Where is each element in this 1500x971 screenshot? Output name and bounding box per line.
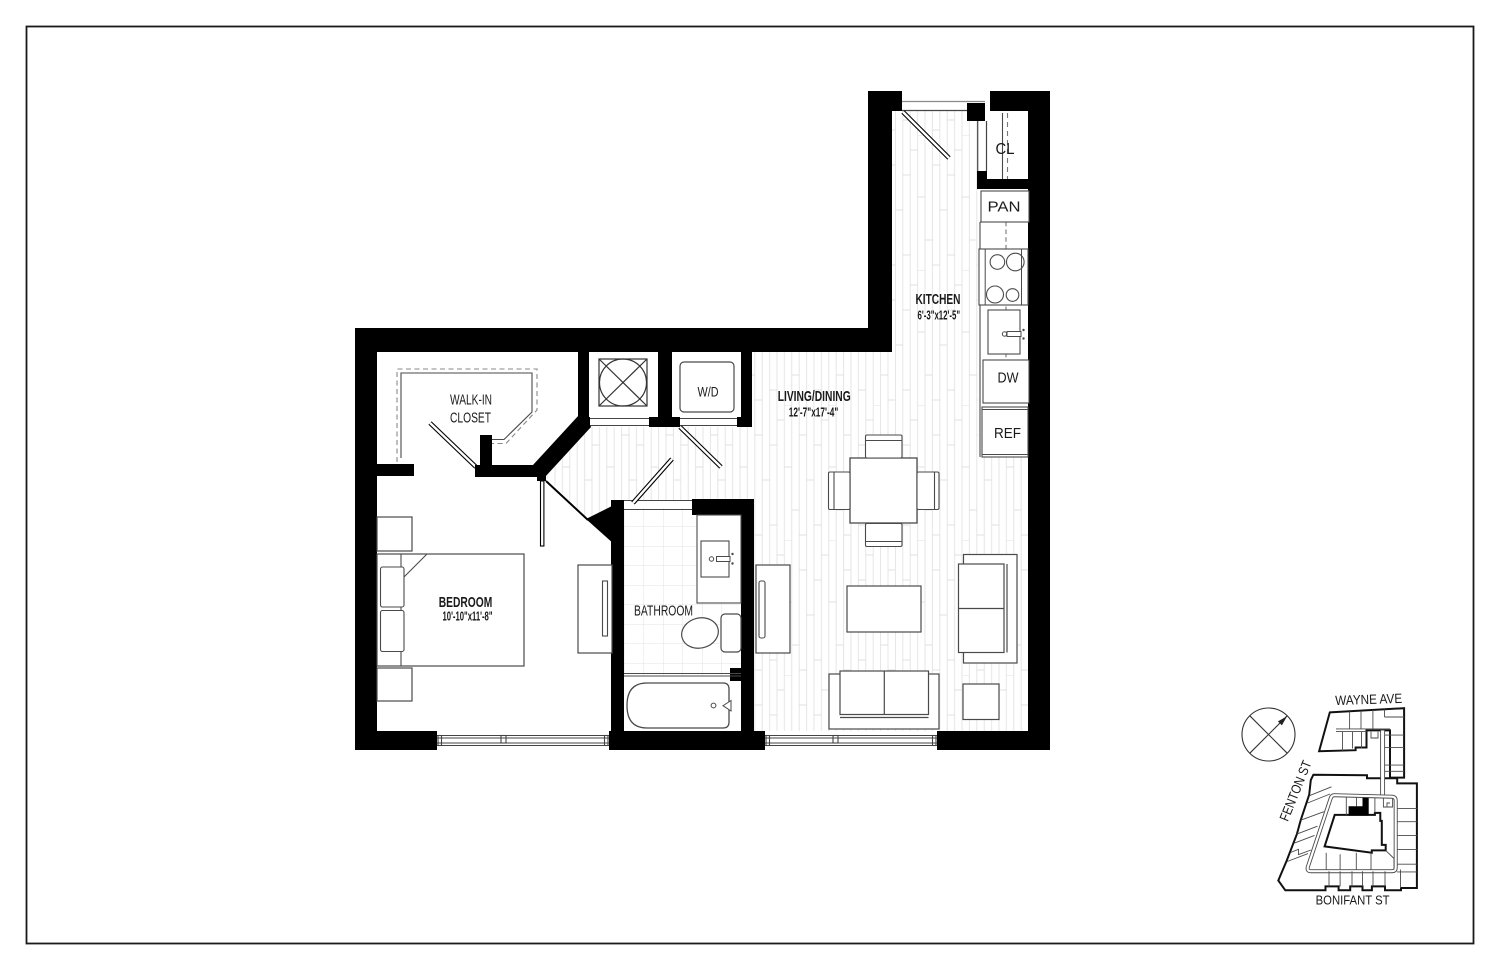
svg-text:KITCHEN: KITCHEN — [916, 292, 961, 308]
svg-text:WALK-IN: WALK-IN — [450, 393, 492, 409]
svg-text:6'-3"x12'-5": 6'-3"x12'-5" — [918, 309, 961, 323]
svg-text:CLOSET: CLOSET — [450, 410, 491, 426]
svg-text:CL: CL — [996, 141, 1015, 158]
svg-text:WAYNE AVE: WAYNE AVE — [1335, 691, 1402, 708]
svg-text:DW: DW — [998, 371, 1019, 387]
svg-text:BONIFANT ST: BONIFANT ST — [1316, 894, 1390, 908]
svg-text:BEDROOM: BEDROOM — [439, 594, 493, 611]
svg-text:10'-10"x11'-8": 10'-10"x11'-8" — [443, 610, 493, 624]
svg-text:REF: REF — [994, 426, 1021, 442]
svg-text:LIVING/DINING: LIVING/DINING — [778, 388, 851, 405]
svg-text:12'-7"x17'-4": 12'-7"x17'-4" — [789, 406, 839, 420]
svg-text:BATHROOM: BATHROOM — [634, 604, 693, 620]
svg-text:W/D: W/D — [698, 385, 719, 400]
svg-text:PAN: PAN — [988, 200, 1021, 216]
